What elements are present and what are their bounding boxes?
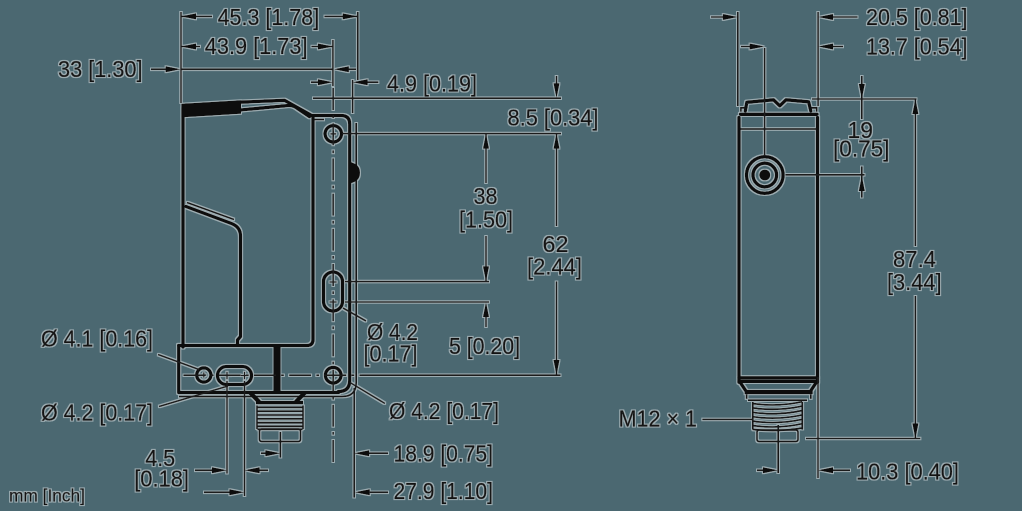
svg-text:10.3 [0.40]: 10.3 [0.40]	[856, 459, 959, 485]
svg-text:Ø 4.2 [0.17]: Ø 4.2 [0.17]	[41, 400, 153, 426]
svg-text:8.5 [0.34]: 8.5 [0.34]	[508, 105, 599, 131]
svg-text:27.9 [1.10]: 27.9 [1.10]	[394, 478, 494, 504]
svg-text:[0.75]: [0.75]	[833, 136, 890, 162]
svg-text:Ø 4.2 [0.17]: Ø 4.2 [0.17]	[389, 398, 499, 424]
svg-text:[2.44]: [2.44]	[527, 254, 582, 280]
svg-text:4.9 [0.19]: 4.9 [0.19]	[387, 70, 477, 96]
svg-text:[0.18]: [0.18]	[134, 466, 189, 492]
svg-text:38: 38	[474, 183, 498, 209]
svg-text:[1.50]: [1.50]	[459, 207, 513, 233]
svg-text:5 [0.20]: 5 [0.20]	[449, 333, 520, 359]
svg-text:43.9 [1.73]: 43.9 [1.73]	[205, 33, 308, 59]
svg-text:13.7 [0.54]: 13.7 [0.54]	[866, 34, 968, 60]
svg-text:20.5 [0.81]: 20.5 [0.81]	[866, 4, 968, 30]
svg-text:Ø 4.1 [0.16]: Ø 4.1 [0.16]	[41, 326, 153, 352]
svg-text:M12 × 1: M12 × 1	[619, 406, 697, 432]
svg-text:[0.17]: [0.17]	[364, 341, 418, 367]
svg-text:18.9 [0.75]: 18.9 [0.75]	[394, 440, 494, 466]
svg-text:[3.44]: [3.44]	[887, 269, 942, 295]
svg-text:45.3 [1.78]: 45.3 [1.78]	[218, 4, 320, 30]
svg-text:mm [Inch]: mm [Inch]	[9, 486, 85, 506]
svg-text:33 [1.30]: 33 [1.30]	[58, 56, 143, 82]
